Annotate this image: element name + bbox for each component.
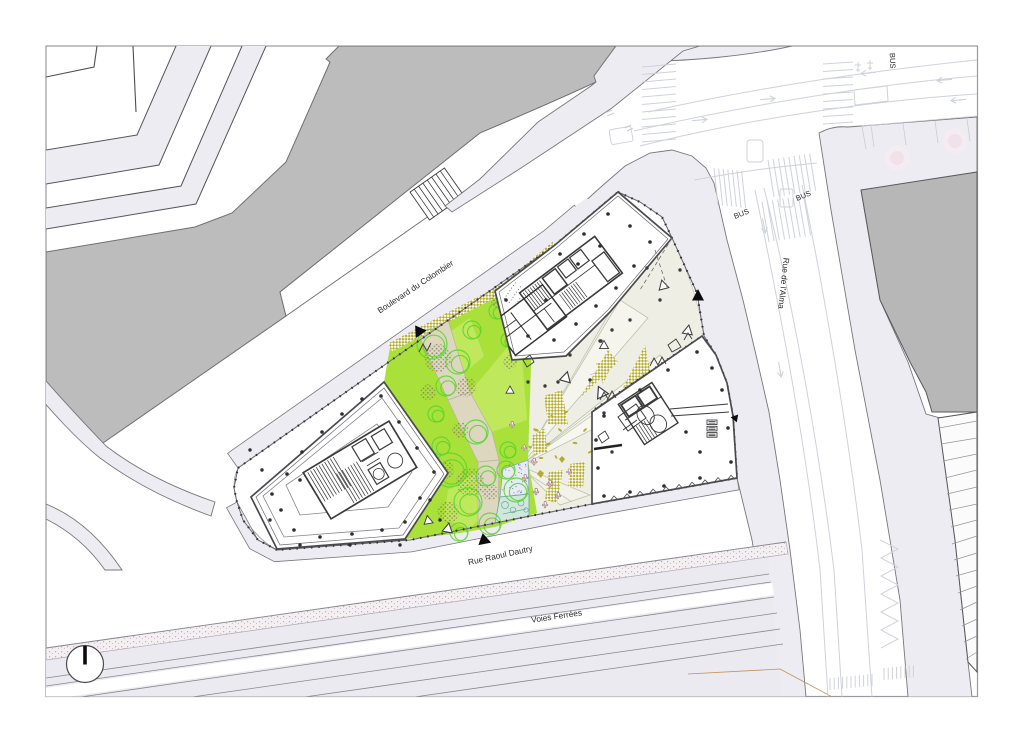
svg-text:BUS: BUS <box>888 53 898 69</box>
